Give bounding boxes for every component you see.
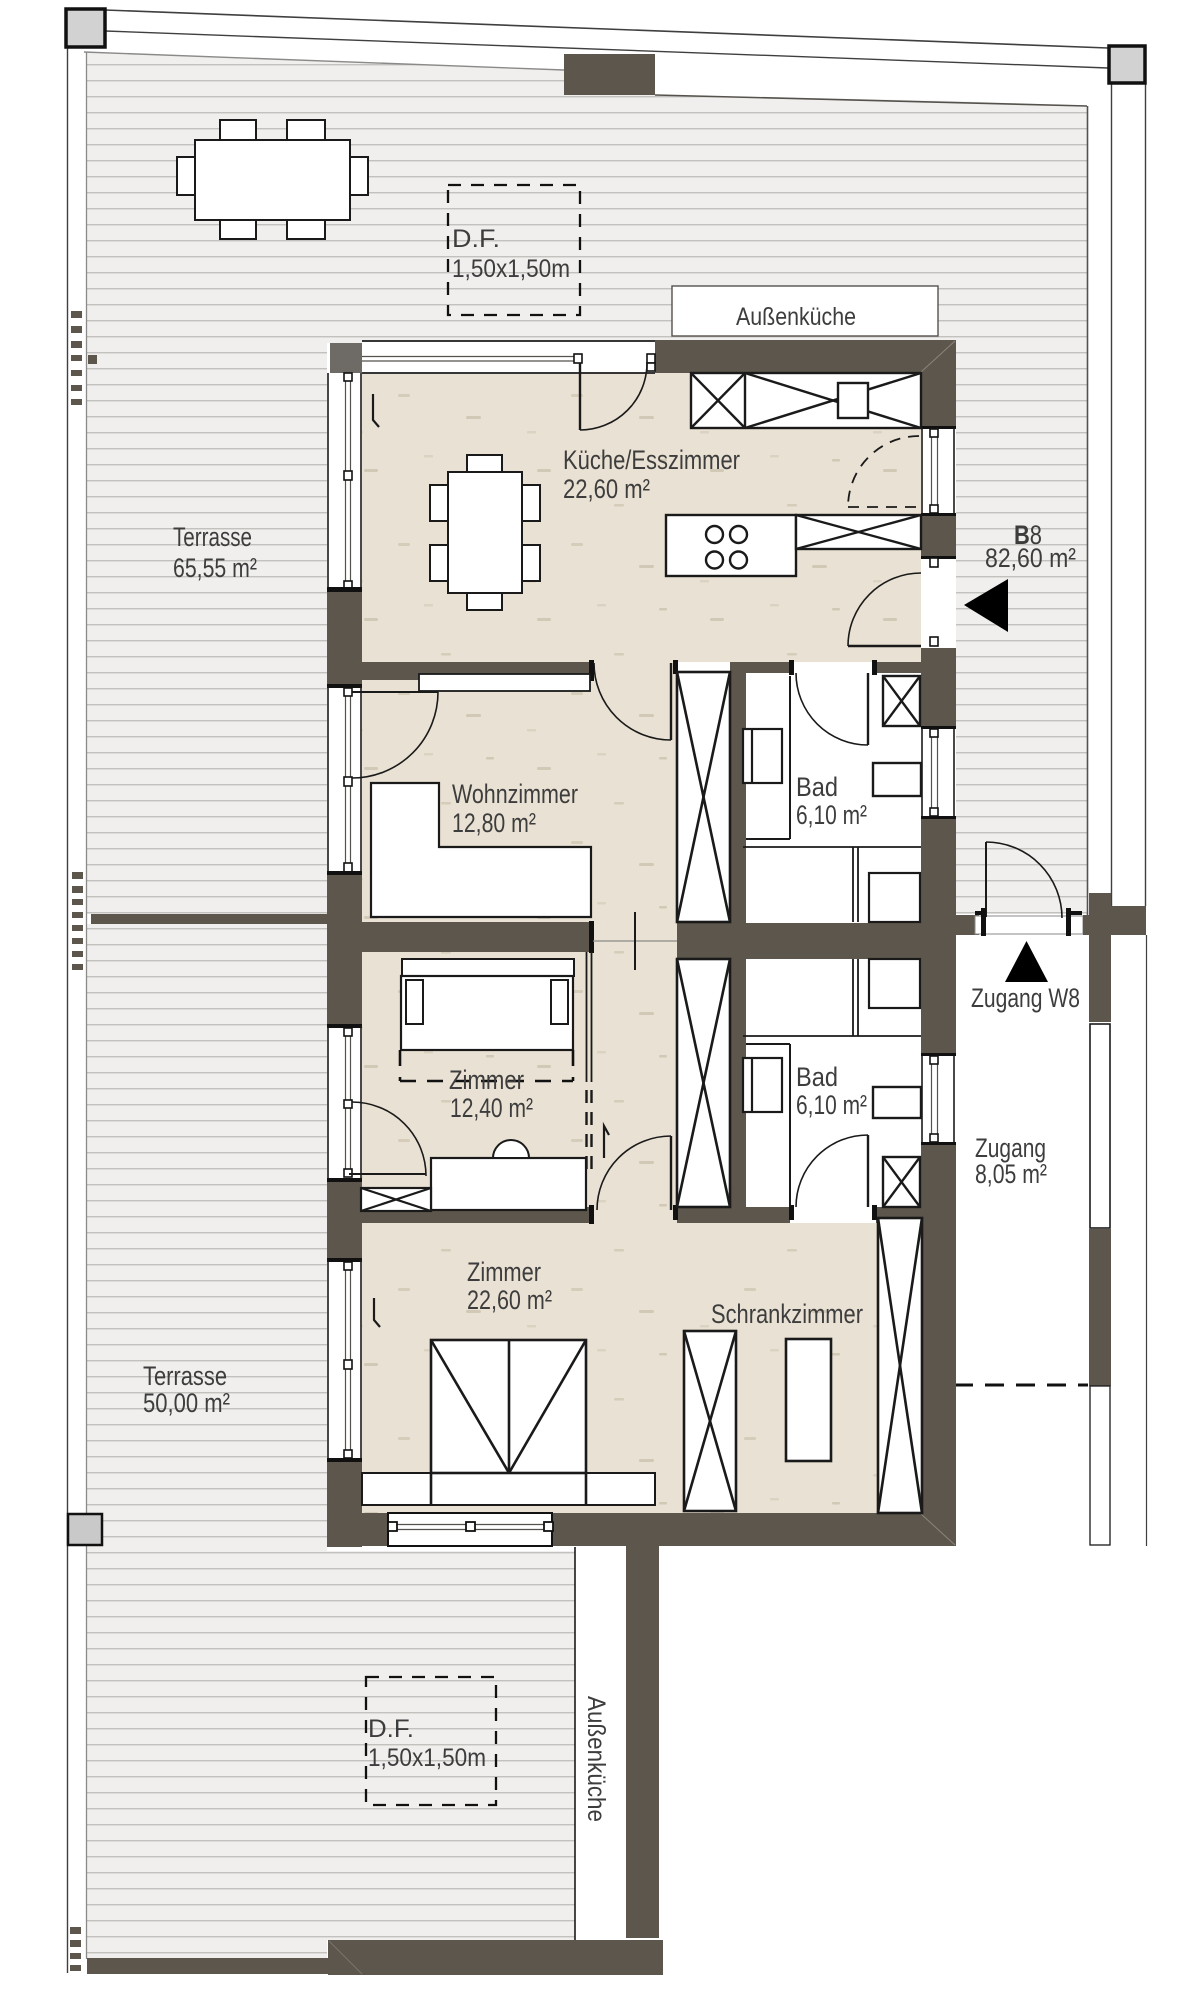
- svg-text:Zimmer: Zimmer: [467, 1257, 541, 1287]
- svg-text:12,80 m²: 12,80 m²: [452, 808, 536, 838]
- svg-text:50,00 m²: 50,00 m²: [143, 1388, 230, 1418]
- svg-text:6,10 m²: 6,10 m²: [796, 1090, 867, 1120]
- svg-text:Außenküche: Außenküche: [582, 1696, 610, 1822]
- svg-text:Terrasse: Terrasse: [143, 1361, 227, 1391]
- svg-text:1,50x1,50m: 1,50x1,50m: [368, 1744, 486, 1772]
- svg-text:12,40 m²: 12,40 m²: [450, 1093, 533, 1123]
- svg-text:D.F.: D.F.: [368, 1715, 414, 1743]
- svg-text:8,05 m²: 8,05 m²: [975, 1159, 1047, 1189]
- svg-text:82,60 m²: 82,60 m²: [985, 543, 1076, 573]
- svg-text:D.F.: D.F.: [452, 225, 500, 253]
- svg-text:Bad: Bad: [796, 772, 838, 802]
- svg-text:Terrasse: Terrasse: [173, 522, 252, 552]
- svg-text:6,10 m²: 6,10 m²: [796, 800, 867, 830]
- svg-text:Außenküche: Außenküche: [736, 303, 856, 331]
- svg-text:65,55 m²: 65,55 m²: [173, 553, 257, 583]
- svg-text:Zimmer: Zimmer: [449, 1065, 524, 1095]
- svg-text:22,60 m²: 22,60 m²: [467, 1285, 552, 1315]
- svg-text:Bad: Bad: [796, 1062, 838, 1092]
- svg-text:Wohnzimmer: Wohnzimmer: [452, 779, 578, 809]
- svg-text:Schrankzimmer: Schrankzimmer: [711, 1299, 863, 1329]
- svg-text:Küche/Esszimmer: Küche/Esszimmer: [563, 445, 740, 475]
- svg-text:22,60 m²: 22,60 m²: [563, 474, 650, 504]
- svg-text:1,50x1,50m: 1,50x1,50m: [452, 255, 570, 283]
- svg-text:Zugang W8: Zugang W8: [971, 983, 1080, 1013]
